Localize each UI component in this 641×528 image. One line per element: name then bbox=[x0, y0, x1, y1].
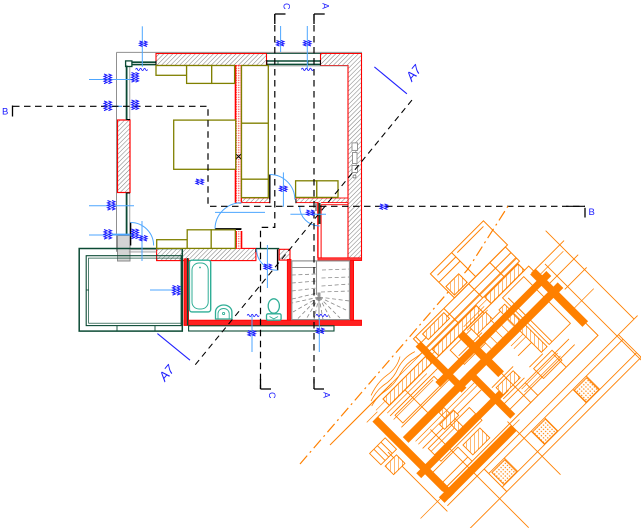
svg-text:B: B bbox=[589, 207, 595, 218]
svg-text:C: C bbox=[282, 3, 292, 10]
svg-text:A: A bbox=[321, 3, 331, 9]
svg-text:A: A bbox=[322, 392, 332, 398]
svg-text:C: C bbox=[267, 392, 277, 399]
svg-text:B: B bbox=[2, 107, 8, 118]
